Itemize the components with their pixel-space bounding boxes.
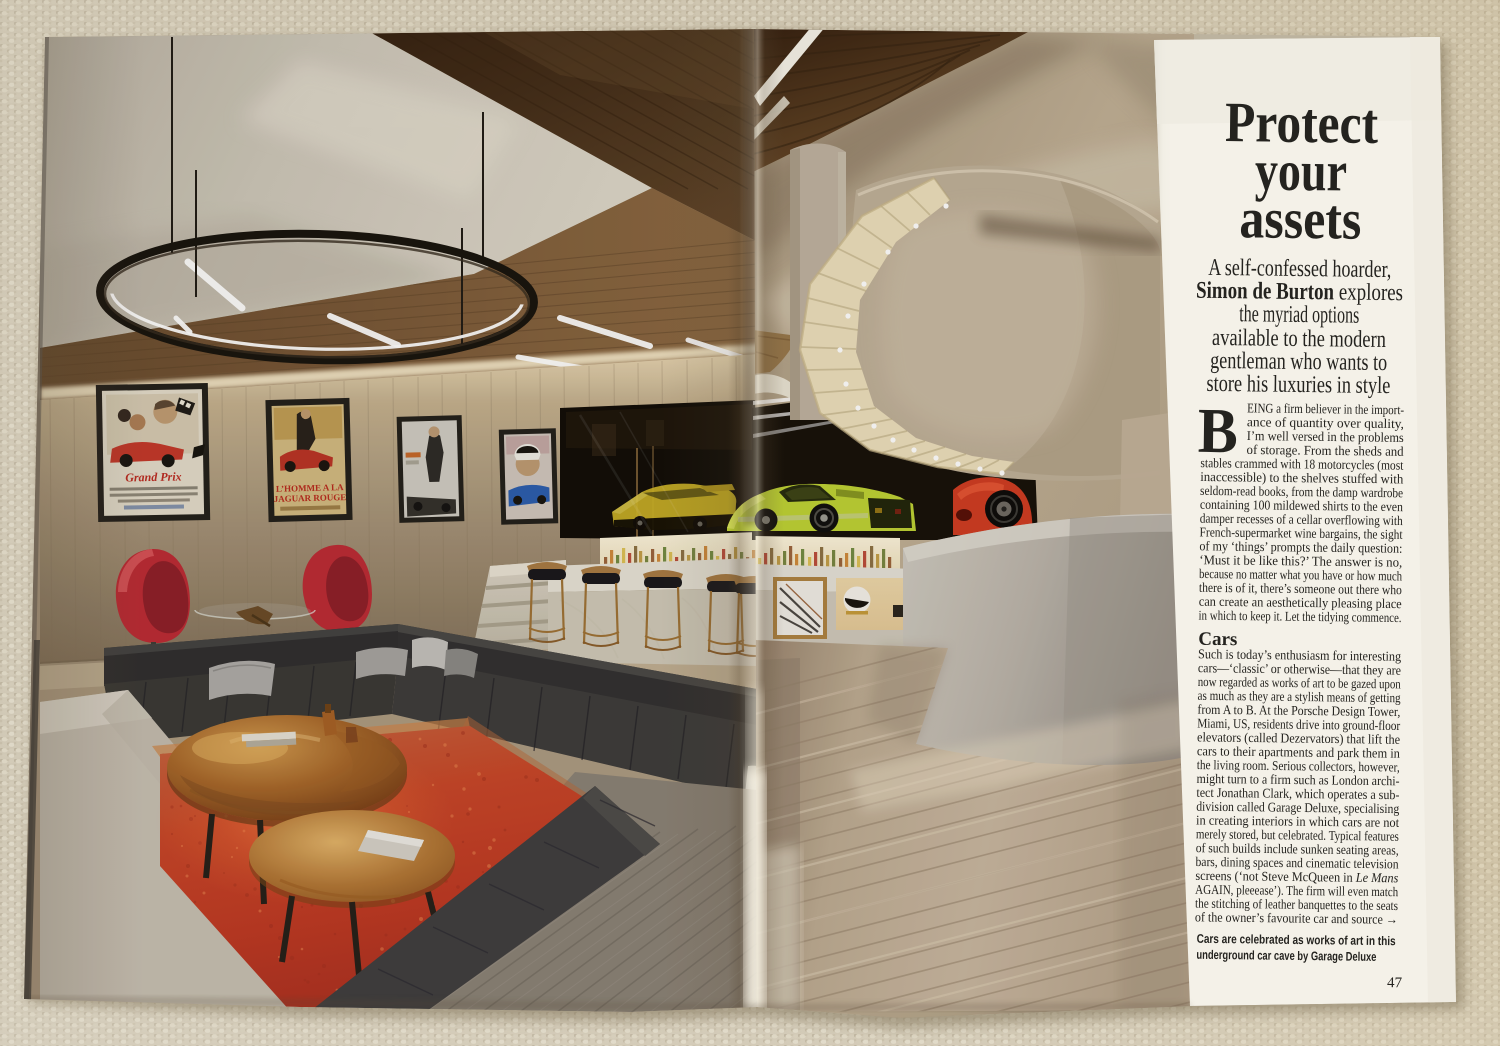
svg-text:Cars are celebrated as works o: Cars are celebrated as works of art in t… <box>1197 932 1396 948</box>
svg-text:assets: assets <box>1239 187 1362 251</box>
svg-text:underground car cave by Garage: underground car cave by Garage Deluxe <box>1196 948 1376 964</box>
svg-text:of the owner’s favourite car a: of the owner’s favourite car and source … <box>1195 909 1398 926</box>
svg-text:in which to keep it. Let the t: in which to keep it. Let the tidying com… <box>1198 608 1401 625</box>
svg-text:47: 47 <box>1387 975 1403 991</box>
